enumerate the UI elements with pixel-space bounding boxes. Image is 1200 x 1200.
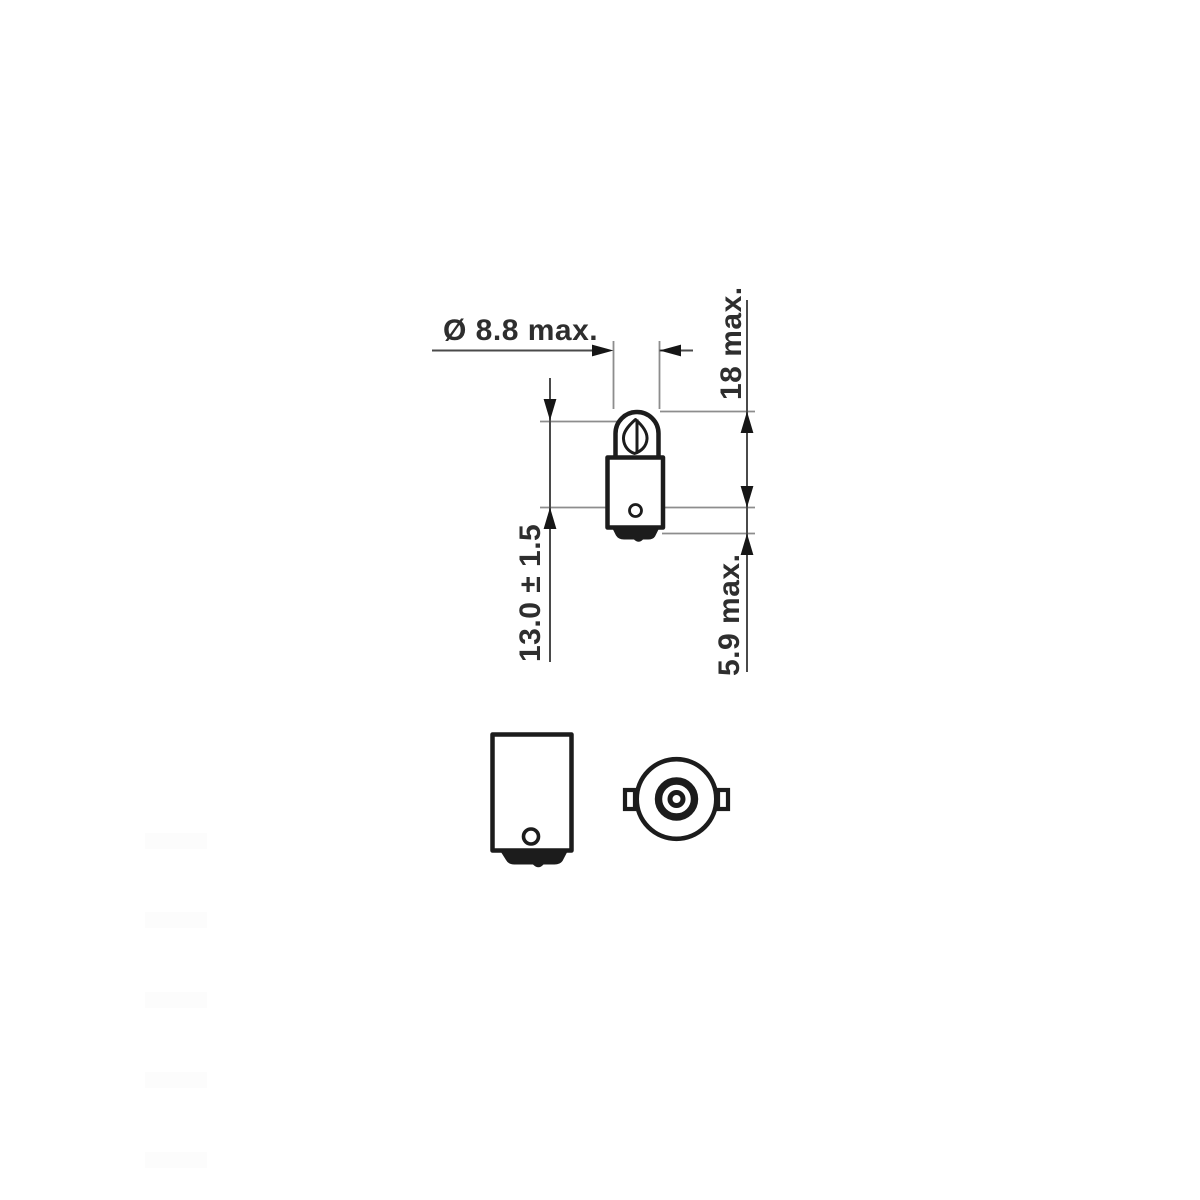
bayonet-lug-left (625, 790, 635, 809)
base-end-view (625, 759, 728, 839)
watermark-stripe (145, 992, 207, 1008)
watermark-stripe (145, 833, 207, 849)
arrowhead-down-icon (544, 399, 557, 421)
bayonet-pin (524, 829, 539, 844)
arrowhead-up-icon (741, 534, 754, 556)
arrowhead-up-icon (741, 412, 754, 434)
length-dimensions: 18 max. 5.9 max. (713, 286, 753, 676)
base-shell-circle (637, 759, 717, 839)
bulb-spec-diagram: Ø 8.8 max. 18 max. 5.9 max. 13.0 ± 1.5 (0, 0, 1200, 1200)
bulb-side-view (608, 412, 664, 542)
bayonet-lug-right (718, 790, 728, 809)
bottom-contact (500, 851, 568, 868)
bayonet-pin (630, 505, 642, 517)
bottom-contact (613, 529, 660, 542)
base-side-view (493, 735, 572, 868)
light-center-length-label: 13.0 ± 1.5 (514, 524, 547, 662)
overall-length-label: 18 max. (715, 286, 748, 400)
technical-drawing: Ø 8.8 max. 18 max. 5.9 max. 13.0 ± 1.5 (0, 0, 1200, 1200)
watermark-stripe (145, 1072, 207, 1088)
base-length-label: 5.9 max. (713, 554, 746, 676)
diameter-label: Ø 8.8 max. (443, 314, 598, 347)
watermark-stripe (145, 1152, 207, 1168)
diameter-dimension: Ø 8.8 max. (432, 314, 693, 356)
watermark-stripes (145, 833, 207, 1168)
light-center-dimension: 13.0 ± 1.5 (514, 378, 556, 662)
arrowhead-left-icon (660, 345, 682, 357)
arrowhead-down-icon (741, 486, 754, 508)
watermark-stripe (145, 912, 207, 928)
